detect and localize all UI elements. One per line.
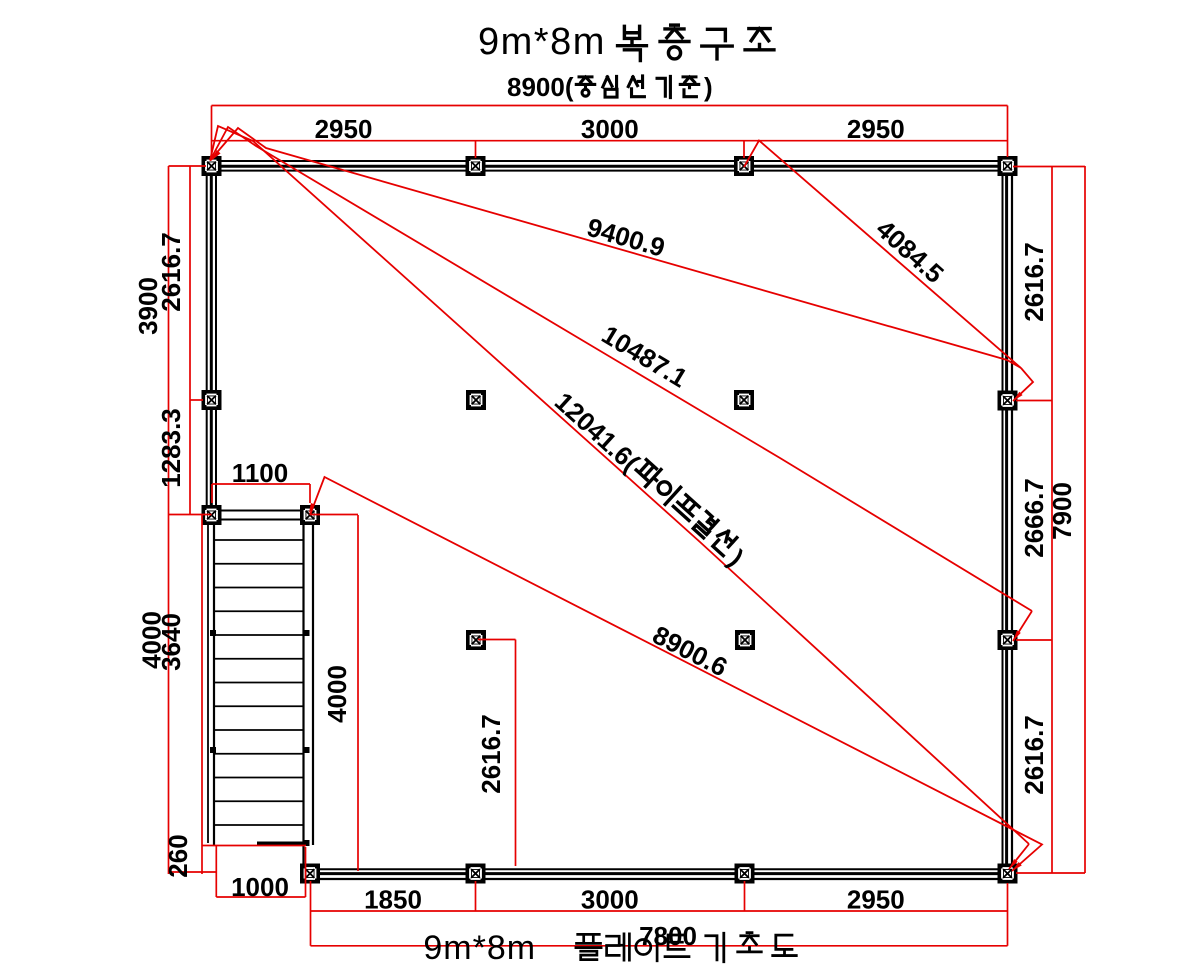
svg-text:2950: 2950 [847, 885, 905, 915]
svg-text:3000: 3000 [581, 114, 639, 144]
svg-text:2950: 2950 [847, 114, 905, 144]
svg-text:2616.7: 2616.7 [1019, 715, 1049, 795]
svg-text:1283.3: 1283.3 [156, 408, 186, 488]
svg-text:4000: 4000 [322, 665, 352, 723]
svg-text:2616.7: 2616.7 [476, 714, 506, 794]
svg-text:2666.7: 2666.7 [1019, 478, 1049, 558]
svg-text:1850: 1850 [364, 885, 422, 915]
svg-text:9m*8m: 9m*8m [478, 21, 606, 63]
svg-text:2616.7: 2616.7 [1019, 242, 1049, 322]
svg-text:2616.7: 2616.7 [156, 232, 186, 312]
svg-text:1000: 1000 [231, 872, 289, 902]
svg-text:260: 260 [163, 834, 193, 877]
svg-text:3000: 3000 [581, 885, 639, 915]
svg-text:8900(: 8900( [507, 72, 574, 102]
svg-text:2950: 2950 [315, 114, 373, 144]
svg-text:7900: 7900 [1047, 482, 1077, 540]
svg-text:3640: 3640 [156, 613, 186, 671]
svg-text:9m*8m: 9m*8m [423, 929, 536, 967]
svg-text:): ) [704, 72, 713, 102]
svg-text:1100: 1100 [232, 458, 288, 488]
